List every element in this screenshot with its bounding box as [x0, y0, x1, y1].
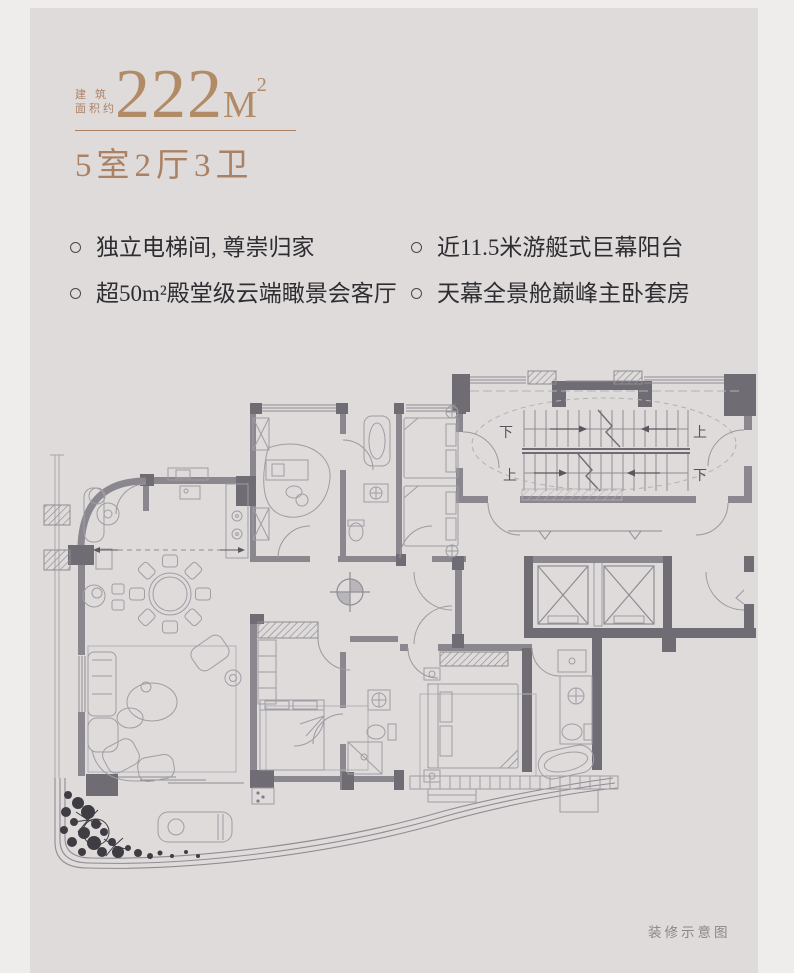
lobby-threshold [508, 531, 662, 539]
stair-label-up-2: 上 [503, 468, 517, 484]
dining-area [83, 549, 211, 633]
survey-crosshair-symbol [330, 572, 370, 612]
living-room [88, 632, 241, 783]
plan-caption: 装修示意图 [648, 921, 731, 941]
master-bedroom [420, 652, 536, 782]
balcony-lounger [158, 812, 232, 842]
stair-label-down-1: 下 [499, 425, 513, 441]
exterior-trim [50, 455, 64, 778]
poster-page: { "header": { "area_label_line1": "建 筑",… [0, 0, 794, 973]
master-bathroom [536, 650, 597, 782]
floor-plan-drawing: 下 上 上 下 [0, 0, 794, 973]
stair-label-up-1: 上 [693, 425, 707, 441]
study-room [253, 418, 330, 540]
stair-label-down-2: 下 [693, 468, 707, 484]
walls [78, 384, 752, 790]
elevators [538, 562, 654, 626]
middle-bathroom [348, 416, 390, 541]
twin-bedroom [404, 406, 458, 557]
structural-piers [68, 374, 756, 796]
staircase: 下 上 上 下 [470, 391, 740, 500]
planter-shrubs [60, 791, 200, 859]
